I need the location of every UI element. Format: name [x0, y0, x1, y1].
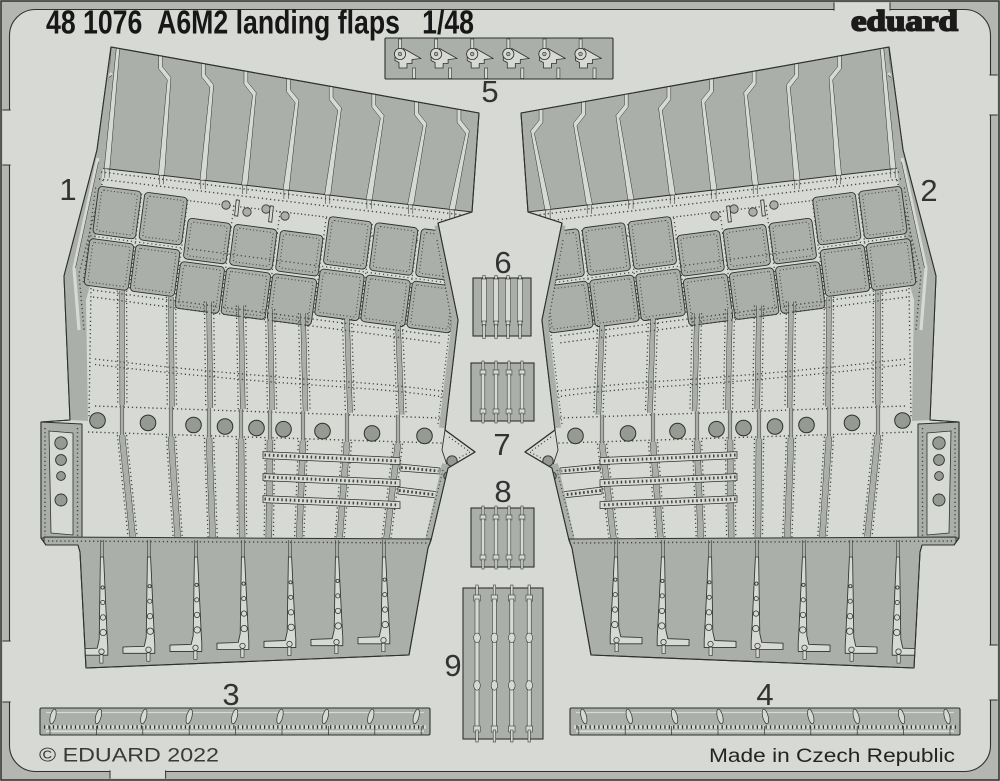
svg-text:3: 3: [222, 677, 239, 712]
svg-text:6: 6: [494, 245, 511, 280]
svg-text:eduard: eduard: [851, 5, 958, 38]
svg-text:8: 8: [494, 474, 511, 509]
svg-text:Made in Czech Republic: Made in Czech Republic: [709, 746, 955, 767]
svg-text:7: 7: [493, 427, 510, 462]
svg-text:48 1076 A6M2 landing flaps: 48 1076 A6M2 landing flaps 1/48: [46, 4, 474, 41]
svg-text:1: 1: [59, 172, 76, 207]
svg-text:9: 9: [444, 648, 461, 683]
svg-text:© EDUARD 2022: © EDUARD 2022: [39, 746, 219, 767]
svg-text:2: 2: [920, 173, 937, 208]
svg-text:4: 4: [756, 677, 773, 712]
